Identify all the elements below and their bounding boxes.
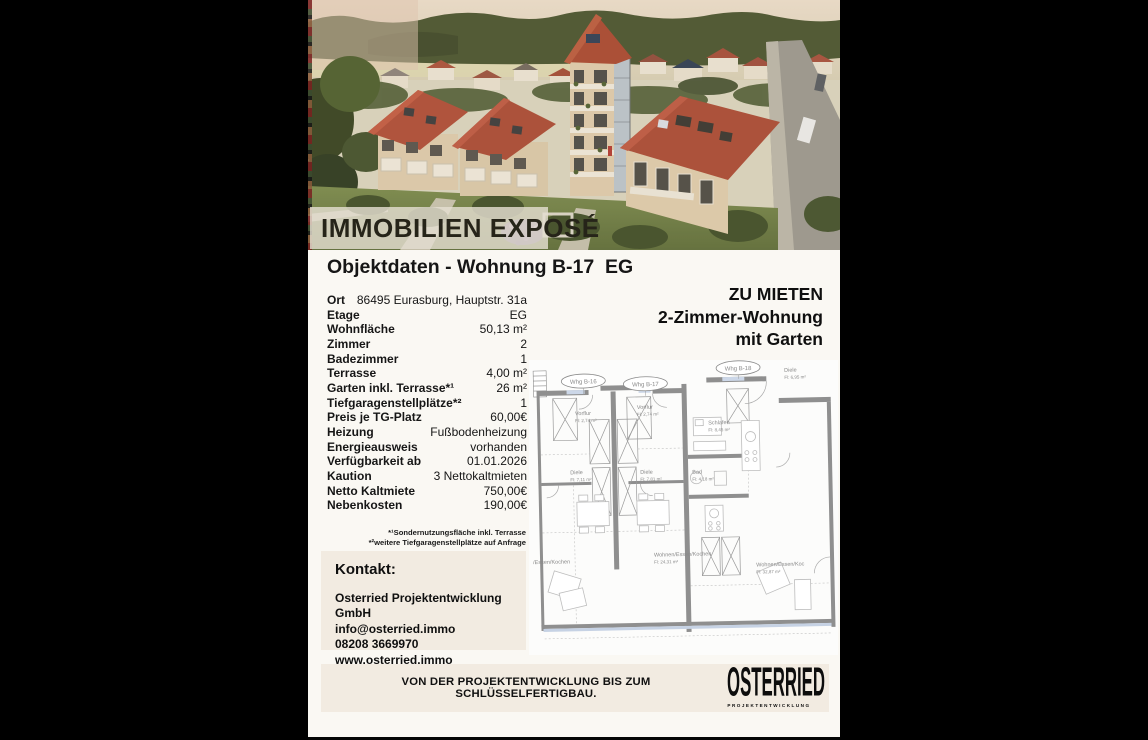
row-label: Verfügbarkeit ab xyxy=(327,454,421,469)
row-value: 26 m² xyxy=(496,381,527,396)
table-row: HeizungFußbodenheizung xyxy=(327,425,527,440)
window xyxy=(567,390,585,394)
row-value: 4,00 m² xyxy=(486,366,527,381)
room-diele-b16: Diele xyxy=(570,470,583,476)
row-value: Fußbodenheizung xyxy=(430,425,527,440)
row-value: 50,13 m² xyxy=(480,322,527,337)
row-label: Badezimmer xyxy=(327,352,398,367)
table-row: Preis je TG-Platz60,00€ xyxy=(327,410,527,425)
room-diele-b18: Diele xyxy=(784,368,797,374)
row-label: Zimmer xyxy=(327,337,370,352)
footnote-1: *¹Sondernutzungsfläche inkl. Terrasse xyxy=(327,528,526,538)
offer-block: ZU MIETEN 2-Zimmer-Wohnung mit Garten xyxy=(658,283,823,351)
row-label: Tiefgaragenstellplätze*² xyxy=(327,396,461,411)
room-vorflur-b16: Vorflur xyxy=(575,411,591,417)
row-label: Terrasse xyxy=(327,366,376,381)
room-diele-b18-area: Fl: 6,95 m² xyxy=(784,374,806,379)
offer-line-2: 2-Zimmer-Wohnung xyxy=(658,306,823,329)
table-row: Nebenkosten190,00€ xyxy=(327,498,527,513)
row-label: Netto Kaltmiete xyxy=(327,484,415,499)
row-label: Ort xyxy=(327,293,345,308)
room-vorflur-b17: Vorflur xyxy=(637,405,653,411)
table-row: Terrasse4,00 m² xyxy=(327,366,527,381)
room-wohnen-right-area: Fl: 32,87 m² xyxy=(756,569,781,575)
offer-line-3: mit Garten xyxy=(658,328,823,351)
row-label: Preis je TG-Platz xyxy=(327,410,422,425)
table-row: Badezimmer1 xyxy=(327,352,527,367)
table-row: Netto Kaltmiete750,00€ xyxy=(327,484,527,499)
table-row: Garten inkl. Terrasse*¹26 m² xyxy=(327,381,527,396)
offer-line-1: ZU MIETEN xyxy=(658,283,823,306)
room-wohnen-right: Wohnen/Essen/Koc xyxy=(756,561,805,568)
unit-label-b17: Whg B-17 xyxy=(632,382,659,389)
osterried-logo: OSTERRIED PROJEKTENTWICKLUNG xyxy=(719,668,829,708)
table-row: Verfügbarkeit ab01.01.2026 xyxy=(327,454,527,469)
contact-company: Osterried Projektentwicklung GmbH xyxy=(335,591,518,622)
footer-slogan: VON DER PROJEKTENTWICKLUNG BIS ZUM SCHLÜ… xyxy=(321,676,719,700)
window xyxy=(722,377,744,381)
table-row: Wohnfläche50,13 m² xyxy=(327,322,527,337)
table-row: Energieausweisvorhanden xyxy=(327,440,527,455)
row-value: 750,00€ xyxy=(484,484,527,499)
room-schlafen: Schlafen xyxy=(708,420,730,426)
row-value: 3 Nettokaltmieten xyxy=(434,469,527,484)
row-value: 86495 Eurasburg, Hauptstr. 31a xyxy=(357,293,527,308)
object-data-table: Ort86495 Eurasburg, Hauptstr. 31a EtageE… xyxy=(327,293,527,513)
room-vorflur-b16-area: Fl: 2,74 m² xyxy=(575,418,597,423)
banner-title: IMMOBILIEN EXPOSÉ xyxy=(321,213,600,244)
room-diele-b17: Diele xyxy=(640,470,653,476)
row-label: Heizung xyxy=(327,425,374,440)
row-label: Nebenkosten xyxy=(327,498,402,513)
room-bad: Bad xyxy=(692,470,702,476)
expose-banner: IMMOBILIEN EXPOSÉ xyxy=(310,207,548,249)
row-label: Garten inkl. Terrasse*¹ xyxy=(327,381,454,396)
property-rendering: IMMOBILIEN EXPOSÉ xyxy=(308,0,840,250)
table-row: EtageEG xyxy=(327,308,527,323)
room-bad-area: Fl: 4,18 m² xyxy=(692,476,714,481)
unit-label-b16: Whg B-16 xyxy=(570,379,597,386)
table-row: Kaution3 Nettokaltmieten xyxy=(327,469,527,484)
footnotes: *¹Sondernutzungsfläche inkl. Terrasse *²… xyxy=(327,528,526,548)
room-wohnen-mid-area: Fl: 24,31 m² xyxy=(654,559,679,565)
room-diele-b17-area: Fl: 7,81 m² xyxy=(640,476,662,481)
room-vorflur-b17-area: Fl: 2,74 m² xyxy=(637,411,659,416)
row-label: Etage xyxy=(327,308,360,323)
row-value: 60,00€ xyxy=(490,410,527,425)
row-value: 2 xyxy=(520,337,527,352)
row-label: Kaution xyxy=(327,469,372,484)
row-value: EG xyxy=(510,308,527,323)
floorplan-image: Whg B-16 Whg B-17 Whg B-18 Diele Fl: 6,9… xyxy=(529,360,838,655)
row-value: 01.01.2026 xyxy=(467,454,527,469)
row-value: 1 xyxy=(520,352,527,367)
logo-wordmark: OSTERRIED xyxy=(727,648,811,718)
footnote-2: *²weitere Tiefgaragenstellplätze auf Anf… xyxy=(327,538,526,548)
expose-page: IMMOBILIEN EXPOSÉ Objektdaten - Wohnung … xyxy=(308,0,840,740)
contact-phone: 08208 3669970 xyxy=(335,637,518,652)
contact-box: Kontakt: Osterried Projektentwicklung Gm… xyxy=(321,551,526,650)
row-value: vorhanden xyxy=(470,440,527,455)
table-row: Zimmer2 xyxy=(327,337,527,352)
room-diele-b16-area: Fl: 7,11 m² xyxy=(570,477,592,482)
row-label: Energieausweis xyxy=(327,440,418,455)
room-wohnen-left: /Essen/Kochen xyxy=(533,559,570,566)
page-title: Objektdaten - Wohnung B-17 EG xyxy=(327,256,633,279)
row-value: 190,00€ xyxy=(484,498,527,513)
contact-heading: Kontakt: xyxy=(335,561,518,578)
footer-bar: VON DER PROJEKTENTWICKLUNG BIS ZUM SCHLÜ… xyxy=(321,664,829,712)
row-label: Wohnfläche xyxy=(327,322,395,337)
table-row: Tiefgaragenstellplätze*²1 xyxy=(327,396,527,411)
room-wohnen-mid: Wohnen/Essen/Kochen xyxy=(654,551,712,558)
contact-email: info@osterried.immo xyxy=(335,622,518,637)
room-schlafen-area: Fl: 8,45 m² xyxy=(708,427,730,432)
plan-furniture xyxy=(544,415,811,614)
row-value: 1 xyxy=(520,396,527,411)
table-row: Ort86495 Eurasburg, Hauptstr. 31a xyxy=(327,293,527,308)
room-labels: Diele Fl: 6,95 m² Vorflur Fl: 2,74 m² Vo… xyxy=(529,367,810,579)
unit-label-b18: Whg B-18 xyxy=(725,366,752,373)
